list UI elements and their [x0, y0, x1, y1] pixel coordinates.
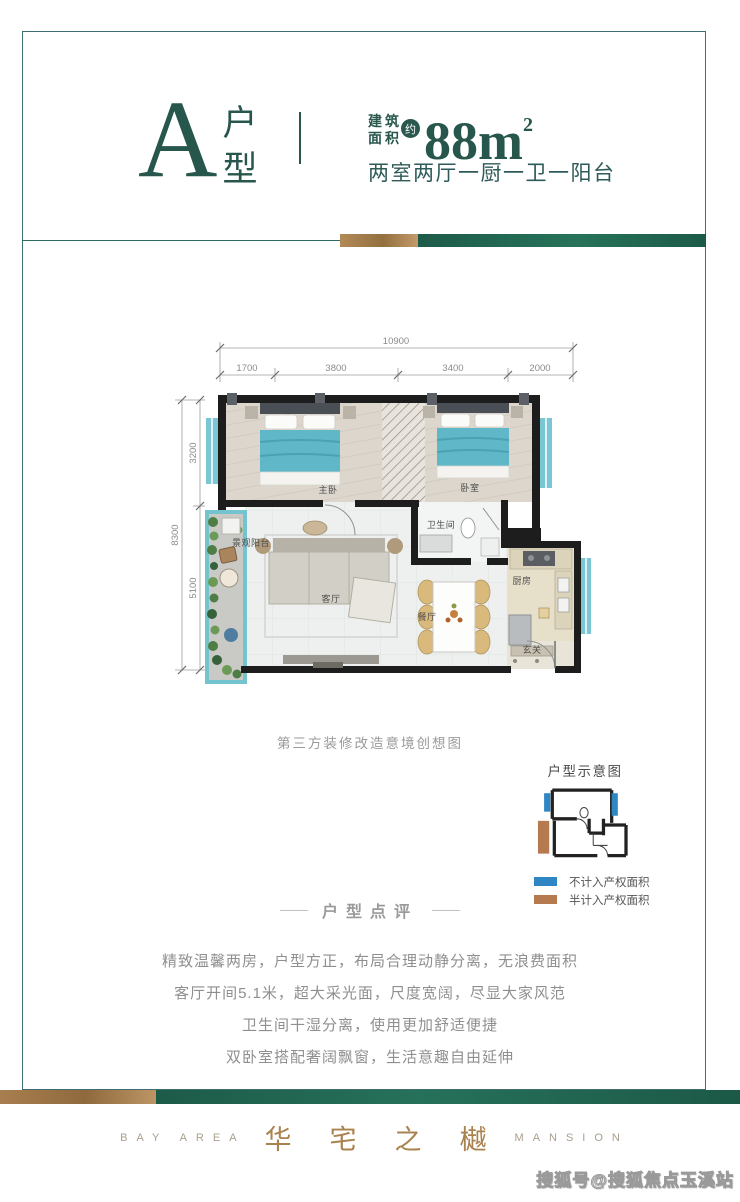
dim-total-height: 8300 — [170, 524, 181, 545]
schematic-window-right — [612, 793, 618, 816]
label-master-bedroom: 主卧 — [318, 484, 337, 495]
brand-chinese-name: 华宅之樾 — [265, 1118, 525, 1157]
header-divider-line — [22, 240, 340, 241]
area-prefix: 建筑 面积 — [368, 113, 402, 147]
brand-mansion: MANSION — [515, 1132, 629, 1144]
floor-plan: 10900 1700 3800 3400 2000 8300 3200 5100 — [165, 330, 605, 700]
label-kitchen: 厨房 — [512, 575, 531, 586]
dim-total-width: 10900 — [383, 336, 409, 347]
layout-description: 两室两厅一厨一卫一阳台 — [368, 157, 616, 187]
unit-type-label: 户 型 — [220, 101, 260, 193]
legend-blue-swatch — [534, 877, 557, 886]
review-dash-right — [432, 910, 460, 911]
sohu-watermark: 搜狐号@搜狐焦点玉溪站 — [536, 1166, 734, 1191]
brand-bay-area: BAY AREA — [120, 1132, 245, 1144]
review-lines: 精致温馨两房，户型方正，布局合理动静分离，无浪费面积 客厅开间5.1米，超大采光… — [0, 946, 740, 1074]
label-dining-room: 餐厅 — [417, 611, 436, 622]
schematic-balcony — [538, 821, 549, 854]
review-title: 户型点评 — [322, 898, 418, 922]
unit-schematic-diagram — [531, 784, 635, 870]
schematic-window-left — [544, 793, 550, 811]
dim-seg-3200: 3200 — [188, 442, 199, 463]
footer-green-bar — [156, 1090, 740, 1104]
review-line-2: 客厅开间5.1米，超大采光面，尺度宽阔，尽显大家风范 — [0, 978, 740, 1010]
dim-seg-3800: 3800 — [325, 363, 346, 374]
dim-seg-5100: 5100 — [188, 577, 199, 598]
unit-type-char-top: 户 — [220, 101, 260, 147]
dim-seg-3400: 3400 — [442, 363, 463, 374]
unit-type-char-bottom: 型 — [220, 147, 260, 193]
header-divider-gold-bar — [340, 234, 418, 247]
approx-badge: 约 — [401, 119, 420, 138]
dim-seg-2000: 2000 — [529, 363, 550, 374]
label-bedroom: 卧室 — [460, 482, 479, 493]
review-dash-left — [280, 910, 308, 911]
review-line-3: 卫生间干湿分离，使用更加舒适便捷 — [0, 1010, 740, 1042]
label-entry: 玄关 — [522, 644, 541, 655]
label-living-room: 客厅 — [321, 593, 340, 604]
header-divider-green-bar — [418, 234, 706, 247]
footer-gold-bar — [0, 1090, 156, 1104]
label-balcony: 景观阳台 — [232, 537, 270, 548]
header-vertical-divider — [299, 112, 301, 164]
area-superscript: 2 — [523, 114, 533, 136]
plan-caption: 第三方装修改造意境创想图 — [0, 732, 740, 752]
brand-line: BAY AREA 华宅之樾 MANSION — [0, 1118, 740, 1157]
unit-type-letter: A — [138, 84, 217, 194]
review-line-4: 双卧室搭配奢阔飘窗，生活意趣自由延伸 — [0, 1042, 740, 1074]
dimension-lines-top — [216, 342, 577, 382]
label-bathroom: 卫生间 — [427, 519, 456, 530]
dim-seg-1700: 1700 — [236, 363, 257, 374]
review-line-1: 精致温馨两房，户型方正，布局合理动静分离，无浪费面积 — [0, 946, 740, 978]
legend-blue-label: 不计入产权面积 — [569, 874, 650, 890]
legend-not-counted: 不计入产权面积 — [534, 876, 650, 887]
schematic-title: 户型示意图 — [533, 760, 637, 780]
review-section-header: 户型点评 — [0, 898, 740, 922]
